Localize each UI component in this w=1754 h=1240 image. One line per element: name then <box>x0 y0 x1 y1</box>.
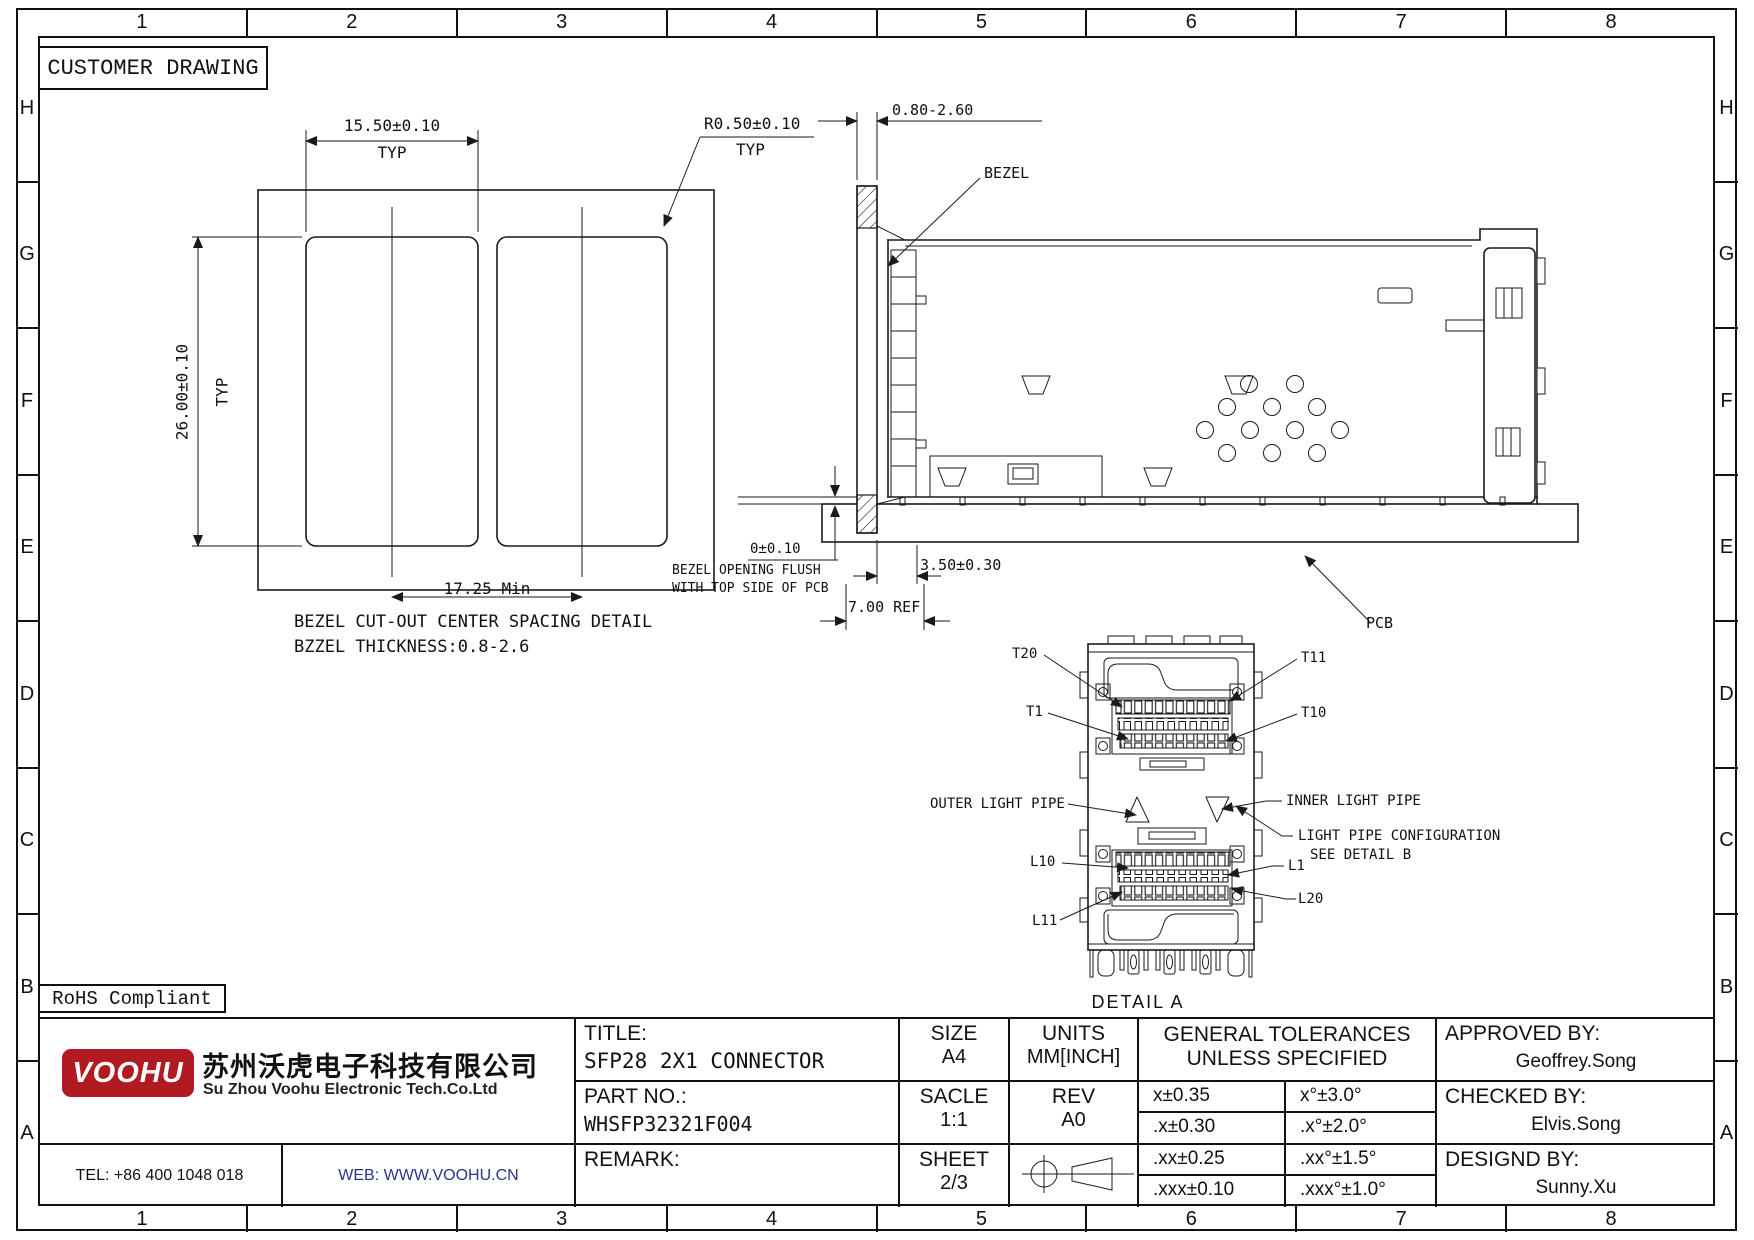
designed-by-cell: DESIGND BY: Sunny.Xu <box>1437 1145 1715 1207</box>
company-name-en: Su Zhou Voohu Electronic Tech.Co.Ltd <box>203 1081 498 1099</box>
pin-label-t11: T11 <box>1301 650 1326 666</box>
outer-light-pipe-label: OUTER LIGHT PIPE <box>930 796 1065 812</box>
remark-cell: REMARK: <box>576 1145 900 1207</box>
tolerance-linear: .x±0.30 <box>1139 1113 1286 1145</box>
rev-value: A0 <box>1010 1109 1137 1132</box>
grid-row-label: D <box>1715 620 1738 767</box>
grid-col-label: 6 <box>1085 1206 1295 1232</box>
rohs-label: RoHS Compliant <box>38 984 226 1013</box>
dim-cutout-height: 26.00±0.10 <box>173 344 192 440</box>
grid-row-label: G <box>16 181 38 328</box>
voohu-logo-text: VOOHU <box>72 1057 183 1090</box>
pin-label-l10: L10 <box>1030 854 1055 870</box>
grid-row-label: H <box>1715 36 1738 181</box>
grid-col-label: 5 <box>876 8 1086 36</box>
checked-by-label: CHECKED BY: <box>1437 1082 1715 1112</box>
grid-band-right: H G F E D C B A <box>1715 36 1738 1206</box>
flush-note-line2: WITH TOP SIDE OF PCB <box>672 581 829 596</box>
pin-label-l11: L11 <box>1032 913 1057 929</box>
grid-row-label: C <box>16 767 38 914</box>
sheet-label: SHEET <box>900 1145 1008 1172</box>
pin-label-t20: T20 <box>1012 646 1037 662</box>
part-no-label: PART NO.: <box>576 1082 898 1112</box>
grid-row-label: E <box>1715 474 1738 621</box>
dim-cutout-width: 15.50±0.10 <box>312 116 472 135</box>
grid-col-label: 5 <box>876 1206 1086 1232</box>
title-label: TITLE: <box>576 1019 898 1049</box>
designed-by-label: DESIGND BY: <box>1437 1145 1715 1175</box>
inner-light-pipe-label: INNER LIGHT PIPE <box>1286 793 1421 809</box>
size-value: A4 <box>900 1046 1008 1069</box>
grid-row-label: F <box>16 327 38 474</box>
tolerance-linear: .xxx±0.10 <box>1139 1176 1286 1207</box>
grid-col-label: 3 <box>456 8 666 36</box>
bezel-callout: BEZEL <box>984 164 1029 182</box>
designed-by-value: Sunny.Xu <box>1437 1175 1715 1199</box>
dim-cutout-width-typ: TYP <box>312 143 472 162</box>
title-value: SFP28 2X1 CONNECTOR <box>576 1049 898 1073</box>
part-no-cell: PART NO.: WHSFP32321F004 <box>576 1082 900 1145</box>
tolerance-angular: x°±3.0° <box>1286 1082 1437 1113</box>
company-name-cn: 苏州沃虎电子科技有限公司 <box>202 1045 538 1084</box>
scale-label: SACLE <box>900 1082 1008 1109</box>
web-cell: WEB: WWW.VOOHU.CN <box>283 1145 576 1207</box>
grid-row-label: G <box>1715 181 1738 328</box>
grid-row-label: A <box>1715 1060 1738 1207</box>
grid-row-label: B <box>1715 913 1738 1060</box>
grid-col-label: 7 <box>1295 1206 1505 1232</box>
pcb-callout: PCB <box>1366 614 1393 632</box>
size-label: SIZE <box>900 1019 1008 1046</box>
projection-cell <box>1010 1145 1139 1207</box>
tolerance-header-line2: UNLESS SPECIFIED <box>1139 1047 1435 1071</box>
light-pipe-note-line1: LIGHT PIPE CONFIGURATION <box>1298 828 1500 844</box>
grid-col-label: 3 <box>456 1206 666 1232</box>
voohu-logo: VOOHU <box>62 1049 194 1097</box>
grid-band-top: 1 2 3 4 5 6 7 8 <box>38 8 1715 36</box>
tolerance-angular: .x°±2.0° <box>1286 1113 1437 1145</box>
pin-label-t10: T10 <box>1301 705 1326 721</box>
dim-corner-radius: R0.50±0.10 <box>704 114 800 133</box>
scale-value: 1:1 <box>900 1109 1008 1132</box>
checked-by-value: Elvis.Song <box>1437 1112 1715 1136</box>
grid-col-label: 1 <box>38 1206 246 1232</box>
grid-row-label: A <box>16 1060 38 1207</box>
approved-by-value: Geoffrey.Song <box>1437 1049 1715 1073</box>
grid-col-label: 2 <box>246 1206 456 1232</box>
tolerance-angular: .xx°±1.5° <box>1286 1145 1437 1176</box>
bezel-caption-line1: BEZEL CUT-OUT CENTER SPACING DETAIL <box>294 612 652 632</box>
customer-drawing-label: CUSTOMER DRAWING <box>38 46 268 90</box>
rev-cell: REV A0 <box>1010 1082 1139 1145</box>
grid-col-label: 6 <box>1085 8 1295 36</box>
tel-cell: TEL: +86 400 1048 018 <box>38 1145 283 1207</box>
grid-col-label: 4 <box>666 8 876 36</box>
tolerance-angular: .xxx°±1.0° <box>1286 1176 1437 1207</box>
dim-corner-radius-typ: TYP <box>736 140 765 159</box>
grid-col-label: 4 <box>666 1206 876 1232</box>
grid-band-left: H G F E D C B A <box>16 36 38 1206</box>
tolerance-linear: x±0.35 <box>1139 1082 1286 1113</box>
tolerance-header-line1: GENERAL TOLERANCES <box>1139 1023 1435 1047</box>
dim-bezel-thickness: 0.80-2.60 <box>892 101 973 119</box>
rev-label: REV <box>1010 1082 1137 1109</box>
grid-row-label: E <box>16 474 38 621</box>
bezel-caption-line2: BZZEL THICKNESS:0.8-2.6 <box>294 637 529 657</box>
grid-row-label: B <box>16 913 38 1060</box>
grid-col-label: 1 <box>38 8 246 36</box>
scale-cell: SACLE 1:1 <box>900 1082 1010 1145</box>
grid-col-label: 8 <box>1505 8 1715 36</box>
title-cell: TITLE: SFP28 2X1 CONNECTOR <box>576 1019 900 1082</box>
grid-col-label: 2 <box>246 8 456 36</box>
approved-by-label: APPROVED BY: <box>1437 1019 1715 1049</box>
dim-cutout-height-typ: TYP <box>213 378 232 407</box>
dim-flush: 0±0.10 <box>750 541 801 557</box>
drawing-sheet: 1 2 3 4 5 6 7 8 1 2 3 4 5 6 7 8 H G F E … <box>0 0 1754 1240</box>
checked-by-cell: CHECKED BY: Elvis.Song <box>1437 1082 1715 1145</box>
detail-a-caption: DETAIL A <box>1078 992 1198 1013</box>
grid-row-label: F <box>1715 327 1738 474</box>
grid-row-label: D <box>16 620 38 767</box>
company-cell: VOOHU 苏州沃虎电子科技有限公司 Su Zhou Voohu Electro… <box>38 1019 576 1145</box>
grid-band-bottom: 1 2 3 4 5 6 7 8 <box>38 1206 1715 1232</box>
units-value: MM[INCH] <box>1010 1046 1137 1069</box>
grid-row-label: C <box>1715 767 1738 914</box>
tolerance-header-cell: GENERAL TOLERANCES UNLESS SPECIFIED <box>1139 1019 1437 1082</box>
grid-col-label: 7 <box>1295 8 1505 36</box>
tolerance-linear: .xx±0.25 <box>1139 1145 1286 1176</box>
size-cell: SIZE A4 <box>900 1019 1010 1082</box>
flush-note-line1: BEZEL OPENING FLUSH <box>672 563 821 578</box>
pin-label-t1: T1 <box>1026 704 1043 720</box>
pin-label-l20: L20 <box>1298 891 1323 907</box>
title-block: VOOHU 苏州沃虎电子科技有限公司 Su Zhou Voohu Electro… <box>38 1017 1715 1205</box>
dim-ref: 7.00 REF <box>848 598 920 616</box>
dim-center-spacing: 17.25 Min <box>407 579 567 598</box>
sheet-value: 2/3 <box>900 1172 1008 1195</box>
remark-label: REMARK: <box>576 1145 898 1175</box>
sheet-cell: SHEET 2/3 <box>900 1145 1010 1207</box>
dim-offset: 3.50±0.30 <box>920 556 1001 574</box>
part-no-value: WHSFP32321F004 <box>576 1112 898 1136</box>
light-pipe-note-line2: SEE DETAIL B <box>1310 847 1411 863</box>
pin-label-l1: L1 <box>1288 858 1305 874</box>
units-cell: UNITS MM[INCH] <box>1010 1019 1139 1082</box>
grid-col-label: 8 <box>1505 1206 1715 1232</box>
units-label: UNITS <box>1010 1019 1137 1046</box>
approved-by-cell: APPROVED BY: Geoffrey.Song <box>1437 1019 1715 1082</box>
grid-row-label: H <box>16 36 38 181</box>
